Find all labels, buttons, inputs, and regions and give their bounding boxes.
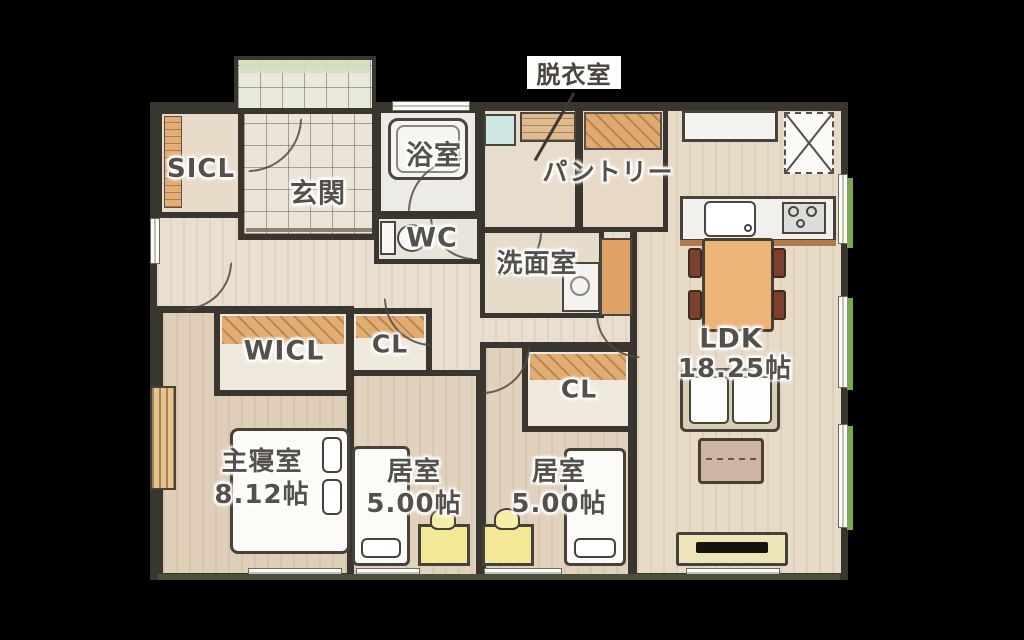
stove-burner-1: [788, 206, 799, 217]
label-washroom: 洗面室: [496, 251, 577, 277]
hedge: [847, 426, 853, 530]
bed-room2-pillow: [574, 538, 616, 558]
laundry-sink: [484, 114, 516, 146]
dining-chair: [688, 290, 702, 320]
refrigerator-space: [784, 112, 834, 174]
vanity-basin: [570, 276, 590, 296]
porch-step-green: [240, 60, 370, 73]
label-genkan: 玄関: [290, 181, 346, 208]
label-sicl: SICL: [167, 156, 235, 182]
master-bed-pillow: [322, 479, 342, 515]
label-wicl: WICL: [244, 338, 325, 365]
window: [150, 218, 160, 264]
dining-chair: [688, 248, 702, 278]
kitchen-faucet: [744, 224, 752, 232]
tv: [696, 542, 768, 553]
bed-room1-pillow: [361, 538, 401, 558]
desk-room2: [482, 524, 534, 566]
label-ldk-area: 18.25帖: [678, 356, 792, 382]
dining-chair: [772, 248, 786, 278]
label-room2: 居室: [532, 459, 586, 485]
low-table: [698, 438, 764, 484]
louver-shutter: [150, 386, 176, 490]
window: [392, 101, 470, 111]
label-master-area: 8.12帖: [214, 482, 309, 508]
label-pantry: パントリー: [542, 160, 673, 185]
label-room1-area: 5.00帖: [366, 491, 461, 517]
label-bath: 浴室: [406, 143, 462, 170]
dining-chair: [772, 290, 786, 320]
master-bed-pillow: [322, 437, 342, 473]
dining-table: [702, 238, 774, 332]
hedge: [847, 298, 853, 390]
hall-storage-cabinet: [600, 238, 632, 316]
label-cl-2: CL: [561, 377, 597, 402]
x-mark-icon: [786, 114, 832, 172]
stove-burner-2: [806, 206, 817, 217]
label-wc: WC: [406, 225, 458, 252]
ground-shadow: [158, 574, 840, 580]
low-table-line: [706, 458, 756, 460]
label-ldk: LDK: [699, 326, 763, 353]
pantry-shelves: [584, 112, 662, 150]
label-dressing-text: 脱衣室: [537, 55, 612, 90]
label-room2-area: 5.00帖: [511, 491, 606, 517]
stove-burner-3: [796, 219, 805, 228]
floor-plan-canvas: 脱衣室 SICL 玄関 浴室 パントリー WC 洗面室 WICL CL CL L…: [0, 0, 1024, 640]
kitchen-cupboard: [682, 110, 778, 142]
genkan-step-edge: [246, 228, 372, 232]
label-cl-1: CL: [372, 332, 408, 357]
desk-room1: [418, 524, 470, 566]
label-master: 主寝室: [221, 449, 302, 475]
label-room1: 居室: [387, 459, 441, 485]
toilet-tank: [380, 221, 396, 255]
hedge: [847, 178, 853, 248]
label-dressing-callout: 脱衣室: [527, 56, 621, 89]
